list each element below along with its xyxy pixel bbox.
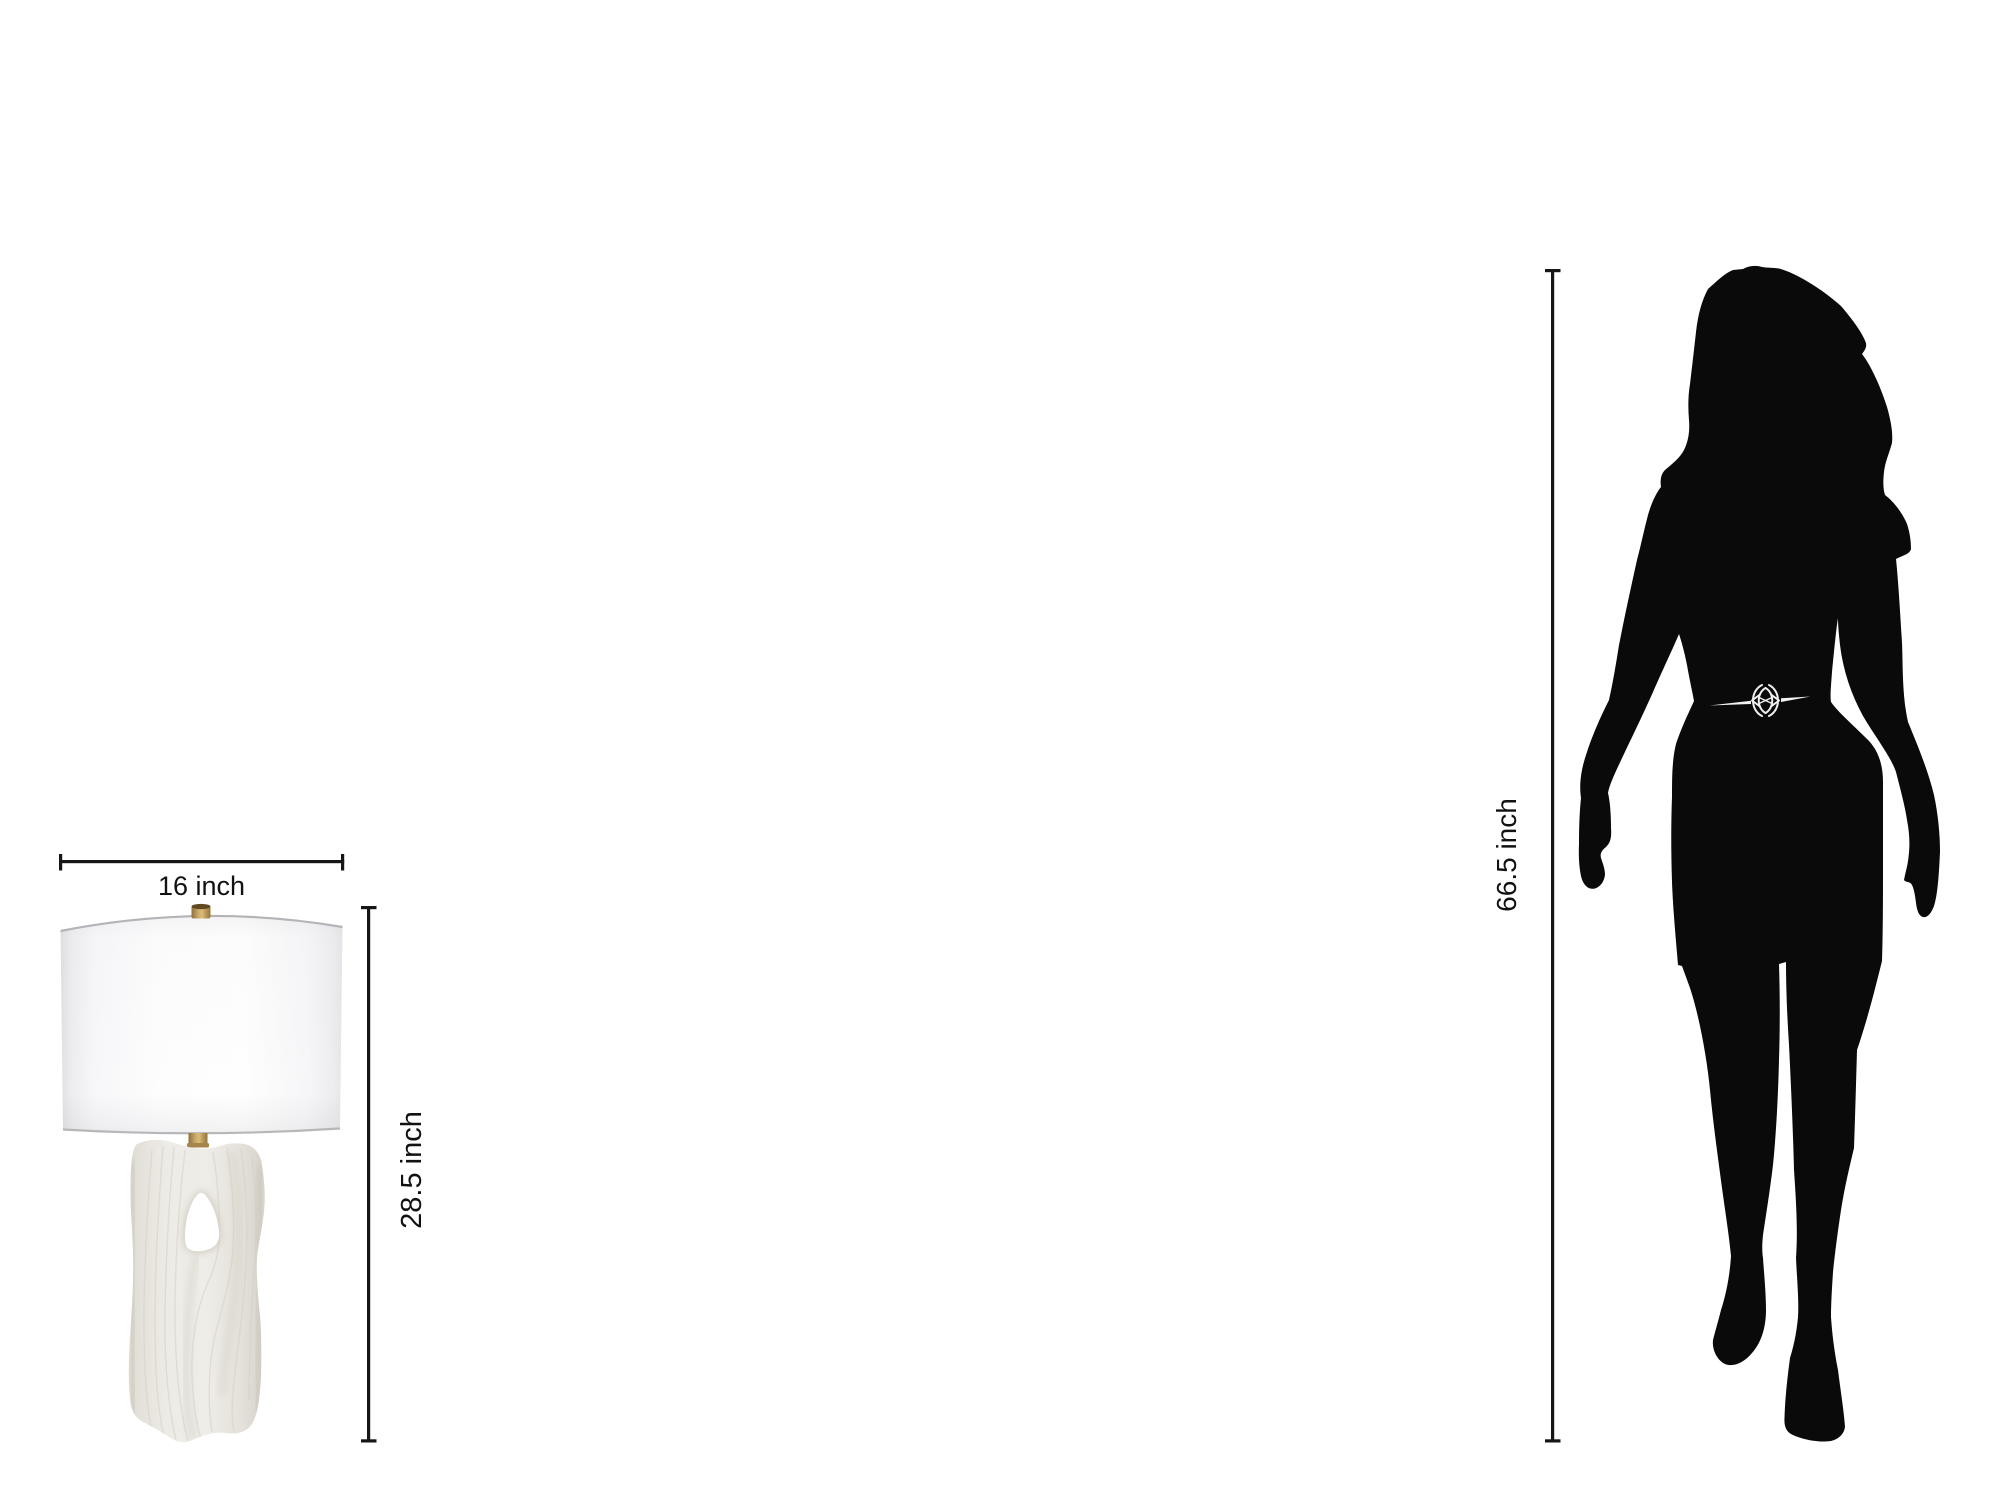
svg-text:16 inch: 16 inch — [158, 871, 245, 901]
svg-text:66.5 inch: 66.5 inch — [1491, 798, 1522, 912]
svg-text:28.5 inch: 28.5 inch — [396, 1111, 428, 1229]
